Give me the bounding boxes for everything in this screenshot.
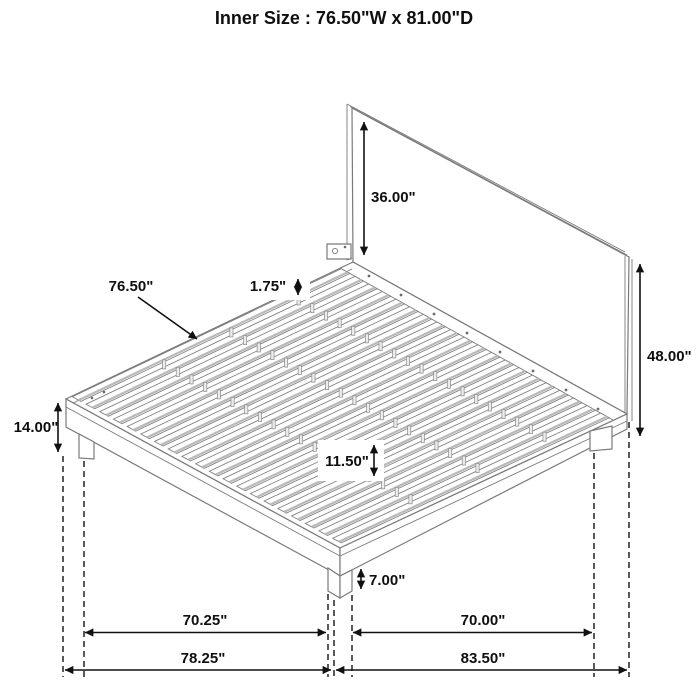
dimension-slat-span: 76.50" (109, 278, 197, 339)
support-block (299, 435, 302, 444)
page-title: Inner Size : 76.50"W x 81.00"D (215, 8, 473, 28)
dimension-side-overall: 83.50" (336, 650, 627, 670)
dim-platform-height-label: 14.00" (14, 419, 59, 436)
dim-slat-segment-label: 11.50" (325, 453, 369, 470)
dim-side-overall-label: 83.50" (461, 650, 506, 667)
support-block (258, 412, 261, 421)
dim-front-leg-span-label: 70.25" (183, 612, 228, 629)
support-block (380, 411, 383, 420)
support-block (365, 334, 368, 343)
support-block (367, 403, 370, 412)
support-block (311, 304, 314, 313)
support-block (284, 358, 287, 367)
support-block (409, 495, 412, 504)
support-block (462, 456, 465, 465)
support-block (324, 311, 327, 320)
support-block (176, 367, 179, 376)
support-block (338, 319, 341, 328)
dim-slat-span-label: 76.50" (109, 278, 154, 295)
support-block (502, 410, 505, 419)
right-leg (590, 426, 612, 451)
dim-headboard-height-label: 36.00" (371, 189, 416, 206)
support-block (245, 405, 248, 414)
dim-overall-height-label: 48.00" (647, 348, 692, 365)
dimension-overall-height: 48.00" (640, 264, 692, 436)
support-block (352, 326, 355, 335)
support-block (382, 480, 385, 489)
support-block (204, 382, 207, 391)
support-block (516, 417, 519, 426)
support-block (231, 397, 234, 406)
support-block (286, 427, 289, 436)
headboard-left-edge (347, 104, 352, 260)
support-block (434, 372, 437, 381)
support-block (393, 349, 396, 358)
support-block (449, 448, 452, 457)
support-block (408, 426, 411, 435)
dimension-slat-segment: 11.50" (318, 440, 384, 481)
dim-slat-thickness-label: 1.75" (250, 278, 286, 295)
support-block (476, 464, 479, 473)
dim-side-leg-span-label: 70.00" (461, 612, 506, 629)
support-block (543, 432, 546, 441)
headboard-bracket (327, 244, 351, 259)
bracket-bolt-dot-icon (344, 246, 347, 249)
support-block (529, 425, 532, 434)
support-block (420, 364, 423, 373)
dimension-platform-height: 14.00" (14, 403, 59, 452)
support-block (190, 375, 193, 384)
support-block (379, 341, 382, 350)
dimension-slat-thickness: 1.75" (244, 271, 310, 300)
support-block (475, 394, 478, 403)
bed-dimension-diagram: 36.00" 48.00" 14.00" 76.50" 1.75" 11.50"… (0, 0, 700, 700)
diagram-canvas: 36.00" 48.00" 14.00" 76.50" 1.75" 11.50"… (0, 0, 700, 700)
support-block (353, 396, 356, 405)
support-block (271, 351, 274, 360)
dimension-front-leg-span: 70.25" (85, 612, 326, 633)
dimension-front-overall: 78.25" (65, 650, 331, 670)
support-block (488, 402, 491, 411)
dim-front-overall-label: 78.25" (181, 650, 226, 667)
support-block (461, 387, 464, 396)
support-block (163, 360, 166, 369)
dimension-side-leg-span: 70.00" (353, 612, 592, 633)
support-block (243, 335, 246, 344)
support-block (312, 373, 315, 382)
support-block (230, 328, 233, 337)
dim-clearance-label: 7.00" (369, 572, 405, 589)
support-block (395, 487, 398, 496)
support-block (272, 420, 275, 429)
support-block (325, 381, 328, 390)
support-block (394, 418, 397, 427)
support-block (298, 366, 301, 375)
dimension-clearance: 7.00" (361, 569, 405, 589)
support-block (435, 441, 438, 450)
support-block (339, 388, 342, 397)
support-block (421, 433, 424, 442)
support-block (257, 343, 260, 352)
support-block (217, 390, 220, 399)
support-block (406, 357, 409, 366)
support-block (447, 379, 450, 388)
support-block (313, 442, 316, 451)
